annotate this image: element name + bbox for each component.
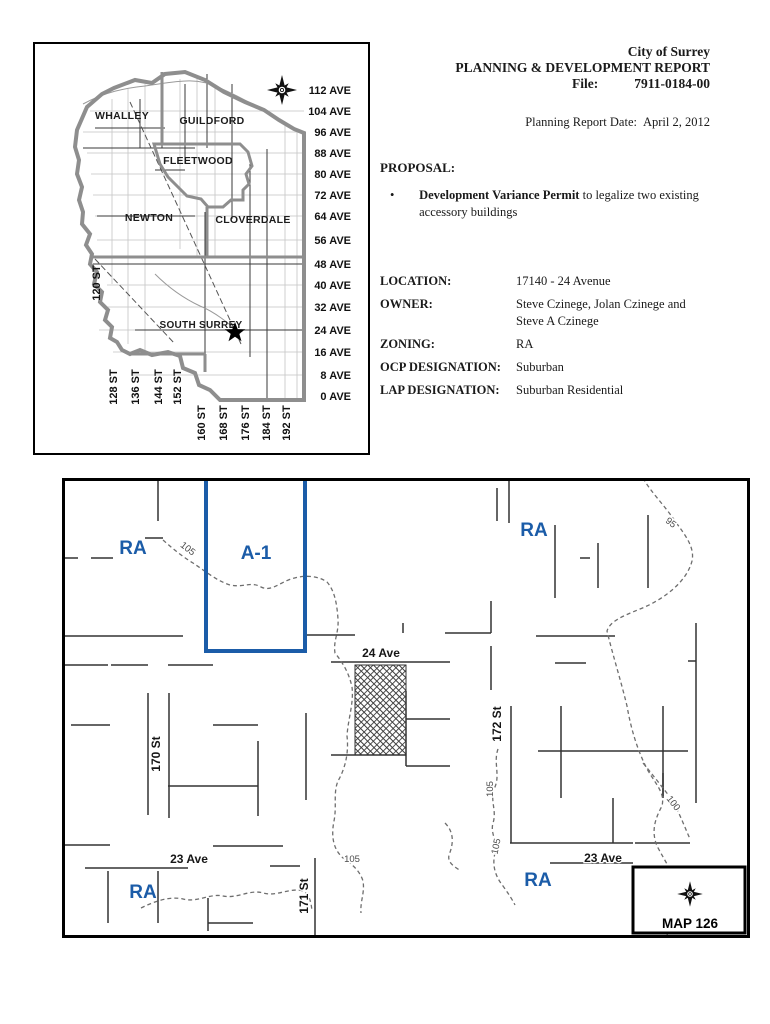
zoning-detail-map: RA A-1 RA RA RA 24 Ave 23 Ave 23 Ave 170…: [62, 478, 750, 938]
field-label: ZONING:: [380, 336, 516, 353]
report-header: City of Surrey PLANNING & DEVELOPMENT RE…: [455, 44, 710, 92]
svg-text:8 AVE: 8 AVE: [320, 370, 351, 382]
field-row-ocp: OCP DESIGNATION: Suburban: [380, 359, 712, 376]
region-label-cloverdale: CLOVERDALE: [215, 214, 290, 226]
planning-report-page: WHALLEY GUILDFORD FLEETWOOD NEWTON CLOVE…: [0, 0, 770, 1024]
proposal-bullet-item: • Development Variance Permit to legaliz…: [380, 187, 710, 221]
svg-text:48 AVE: 48 AVE: [314, 259, 351, 271]
svg-text:96 AVE: 96 AVE: [314, 127, 351, 139]
field-row-owner: OWNER: Steve Czinege, Jolan Czinege and …: [380, 296, 712, 330]
report-date-line: Planning Report Date:April 2, 2012: [525, 115, 710, 130]
contour-label-105-s: 105: [344, 854, 360, 865]
field-row-location: LOCATION: 17140 - 24 Avenue: [380, 273, 712, 290]
region-label-guildford: GUILDFORD: [179, 115, 244, 127]
svg-text:112 AVE: 112 AVE: [309, 85, 351, 97]
zone-label-a1: A-1: [241, 543, 272, 564]
field-value: RA: [516, 336, 712, 353]
report-city: City of Surrey: [455, 44, 710, 60]
svg-text:104 AVE: 104 AVE: [308, 106, 351, 118]
svg-text:144 ST: 144 ST: [153, 369, 165, 405]
field-row-lap: LAP DESIGNATION: Suburban Residential: [380, 382, 712, 399]
street-label-24-ave: 24 Ave: [362, 646, 400, 660]
zone-label-ra-sw: RA: [129, 882, 157, 903]
file-label: File:: [572, 76, 598, 92]
field-value: 17140 - 24 Avenue: [516, 273, 712, 290]
bullet-icon: •: [380, 187, 419, 221]
zone-label-ra-ne: RA: [520, 520, 548, 541]
zone-label-ra-nw: RA: [119, 538, 147, 559]
street-label-170-st: 170 St: [149, 736, 163, 771]
report-date-value: April 2, 2012: [643, 115, 710, 129]
svg-text:120 ST: 120 ST: [91, 265, 103, 301]
street-label-171-st: 171 St: [297, 878, 311, 913]
map-reference-label: MAP 126: [662, 916, 719, 931]
street-label-172-st: 172 St: [490, 706, 504, 741]
report-date-label: Planning Report Date:: [525, 115, 637, 129]
field-value: Suburban: [516, 359, 712, 376]
svg-text:168 ST: 168 ST: [218, 405, 230, 441]
region-label-whalley: WHALLEY: [95, 110, 149, 122]
zoning-map-canvas: RA A-1 RA RA RA 24 Ave 23 Ave 23 Ave 170…: [65, 481, 747, 935]
street-label-23-ave-east: 23 Ave: [584, 851, 622, 865]
svg-text:24 AVE: 24 AVE: [314, 325, 351, 337]
contour-label-100-se: 100: [664, 794, 682, 813]
field-row-zoning: ZONING: RA: [380, 336, 712, 353]
report-title: PLANNING & DEVELOPMENT REPORT: [455, 60, 710, 76]
contour-label-105-e1: 105: [485, 781, 496, 797]
svg-text:152 ST: 152 ST: [172, 369, 184, 405]
field-label: OCP DESIGNATION:: [380, 359, 516, 376]
zone-label-ra-se: RA: [524, 870, 552, 891]
surrey-overview-map: WHALLEY GUILDFORD FLEETWOOD NEWTON CLOVE…: [33, 42, 370, 455]
svg-text:72 AVE: 72 AVE: [314, 190, 351, 202]
file-number: 7911-0184-00: [634, 76, 710, 92]
contour-label-95-ne: 95: [663, 515, 678, 530]
svg-text:184 ST: 184 ST: [261, 405, 273, 441]
svg-text:160 ST: 160 ST: [196, 405, 208, 441]
proposal-bullet-text: Development Variance Permit to legalize …: [419, 187, 710, 221]
svg-text:32 AVE: 32 AVE: [314, 302, 351, 314]
map-reference-box: MAP 126: [633, 867, 745, 933]
proposal-section: PROPOSAL: • Development Variance Permit …: [380, 160, 710, 221]
field-label: LOCATION:: [380, 273, 516, 290]
proposal-heading: PROPOSAL:: [380, 160, 710, 176]
field-value: Suburban Residential: [516, 382, 712, 399]
zoning-contour-lines: [141, 481, 693, 935]
svg-text:88 AVE: 88 AVE: [314, 148, 351, 160]
svg-text:128 ST: 128 ST: [108, 369, 120, 405]
svg-text:64 AVE: 64 AVE: [314, 211, 351, 223]
svg-text:0 AVE: 0 AVE: [320, 391, 351, 403]
svg-text:136 ST: 136 ST: [130, 369, 142, 405]
street-label-23-ave-west: 23 Ave: [170, 852, 208, 866]
svg-text:192 ST: 192 ST: [281, 405, 293, 441]
contour-label-105-e2: 105: [490, 838, 504, 856]
svg-text:80 AVE: 80 AVE: [314, 169, 351, 181]
field-label: OWNER:: [380, 296, 516, 330]
svg-text:56 AVE: 56 AVE: [314, 235, 351, 247]
region-label-fleetwood: FLEETWOOD: [163, 155, 233, 167]
accessory-buildings-hatch-area: [355, 665, 406, 755]
field-label: LAP DESIGNATION:: [380, 382, 516, 399]
compass-rose-icon: [267, 75, 297, 105]
surrey-overview-map-canvas: WHALLEY GUILDFORD FLEETWOOD NEWTON CLOVE…: [35, 44, 368, 453]
subject-property-outline: [206, 481, 305, 651]
svg-text:40 AVE: 40 AVE: [314, 280, 351, 292]
field-value: Steve Czinege, Jolan Czinege and Steve A…: [516, 296, 712, 330]
svg-text:176 ST: 176 ST: [240, 405, 252, 441]
overview-ave-labels: 112 AVE 104 AVE 96 AVE 88 AVE 80 AVE 72 …: [308, 85, 351, 403]
report-fields: LOCATION: 17140 - 24 Avenue OWNER: Steve…: [380, 273, 712, 405]
region-label-newton: NEWTON: [125, 212, 173, 224]
svg-text:16 AVE: 16 AVE: [314, 347, 351, 359]
